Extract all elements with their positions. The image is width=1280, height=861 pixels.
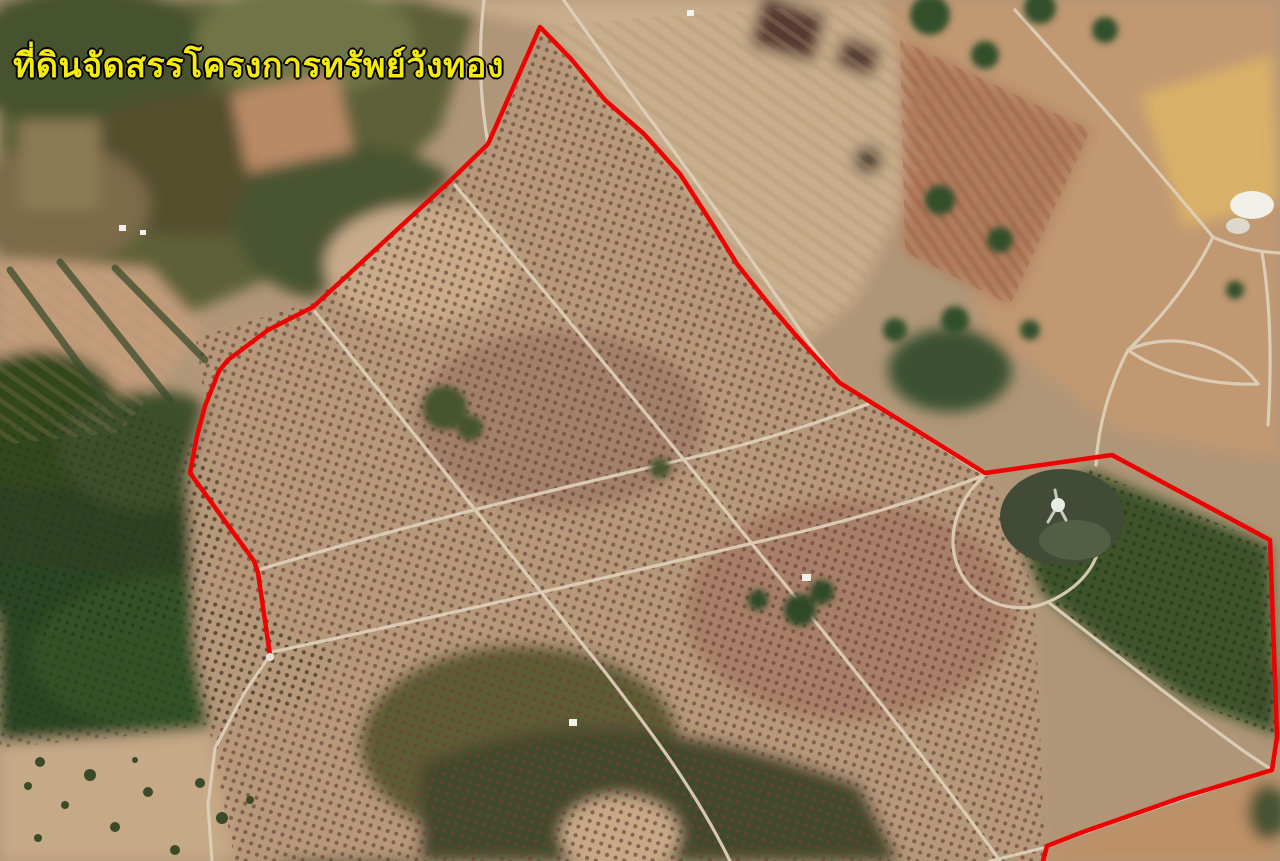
map-title: ที่ดินจัดสรรโครงการทรัพย์วังทอง (13, 48, 504, 85)
building (802, 574, 811, 581)
boundary-endpoint-marker (266, 653, 274, 661)
building (569, 719, 577, 726)
building (687, 10, 694, 16)
screenshot-root: ที่ดินจัดสรรโครงการทรัพย์วังทอง (0, 0, 1280, 861)
bare-ground-patch (1230, 191, 1274, 219)
building (140, 230, 146, 235)
bare-ground-patch (1226, 218, 1250, 234)
building (119, 225, 126, 231)
pond (1000, 469, 1124, 565)
satellite-map (0, 0, 1280, 861)
